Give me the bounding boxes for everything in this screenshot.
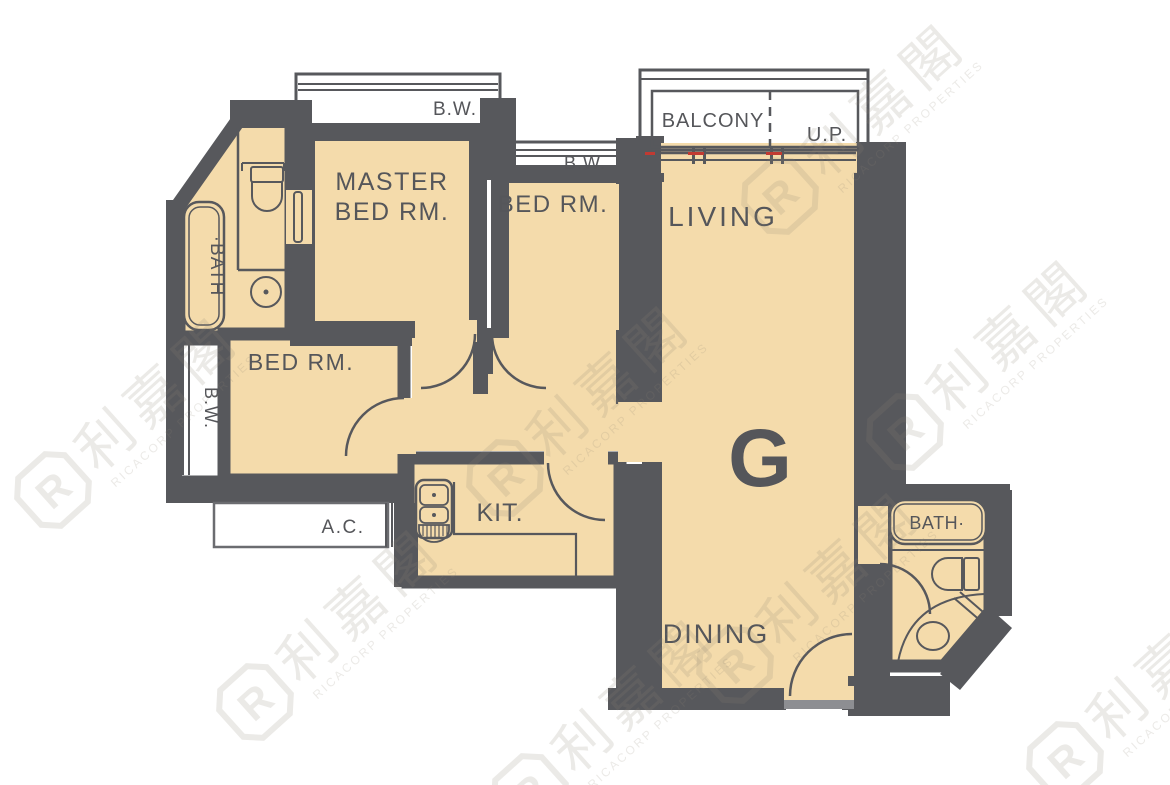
label-bedroom-mid: BED RM. xyxy=(498,191,609,218)
wall-bedroom-left-bottom xyxy=(166,477,412,503)
bath-left-door-leaf xyxy=(294,192,302,242)
label-balcony: BALCONY xyxy=(662,110,765,132)
opening-bedmid-door xyxy=(488,374,550,396)
opening-bedleft-door xyxy=(396,398,416,454)
opening-master-door xyxy=(415,320,477,342)
label-ac-platform: A.C. xyxy=(322,517,365,538)
window-red-mark xyxy=(766,152,782,155)
toilet-left-tank xyxy=(251,167,283,182)
opening-entrance-door xyxy=(784,686,854,702)
label-master-bedroom-line1: MASTER xyxy=(335,168,448,196)
label-bay-window-bedmid: B.W. xyxy=(564,153,606,173)
wall-between-bay-windows xyxy=(480,98,516,180)
wall-under-master xyxy=(290,330,412,346)
entrance-threshold xyxy=(784,700,854,709)
toilet-right-tank xyxy=(964,558,979,590)
watermarks xyxy=(7,10,1170,785)
wall-below-bath-right xyxy=(848,676,950,716)
floor-plan-page: R 利嘉閣 RICACORP PROPERTIES xyxy=(0,0,1170,785)
label-bedroom-left: BED RM. xyxy=(248,349,354,375)
ac-platform xyxy=(214,503,392,547)
wall-bath-right-outer xyxy=(986,490,1012,616)
label-master-bedroom-line2: BED RM. xyxy=(335,198,450,226)
master-bedroom-room xyxy=(306,132,478,330)
toilet-right-bowl xyxy=(932,558,962,590)
label-bay-window-master: B.W. xyxy=(433,99,477,120)
window-red-mark xyxy=(688,152,704,155)
toilet-left-bowl xyxy=(252,182,282,211)
label-unit-g: G xyxy=(728,413,794,504)
basin-right xyxy=(917,622,949,650)
label-bath-left: ·BATH xyxy=(206,236,227,297)
wall-top-bath xyxy=(230,100,312,128)
floor-plan-canvas: R 利嘉閣 RICACORP PROPERTIES xyxy=(0,0,1170,785)
window-red-mark xyxy=(645,152,655,155)
